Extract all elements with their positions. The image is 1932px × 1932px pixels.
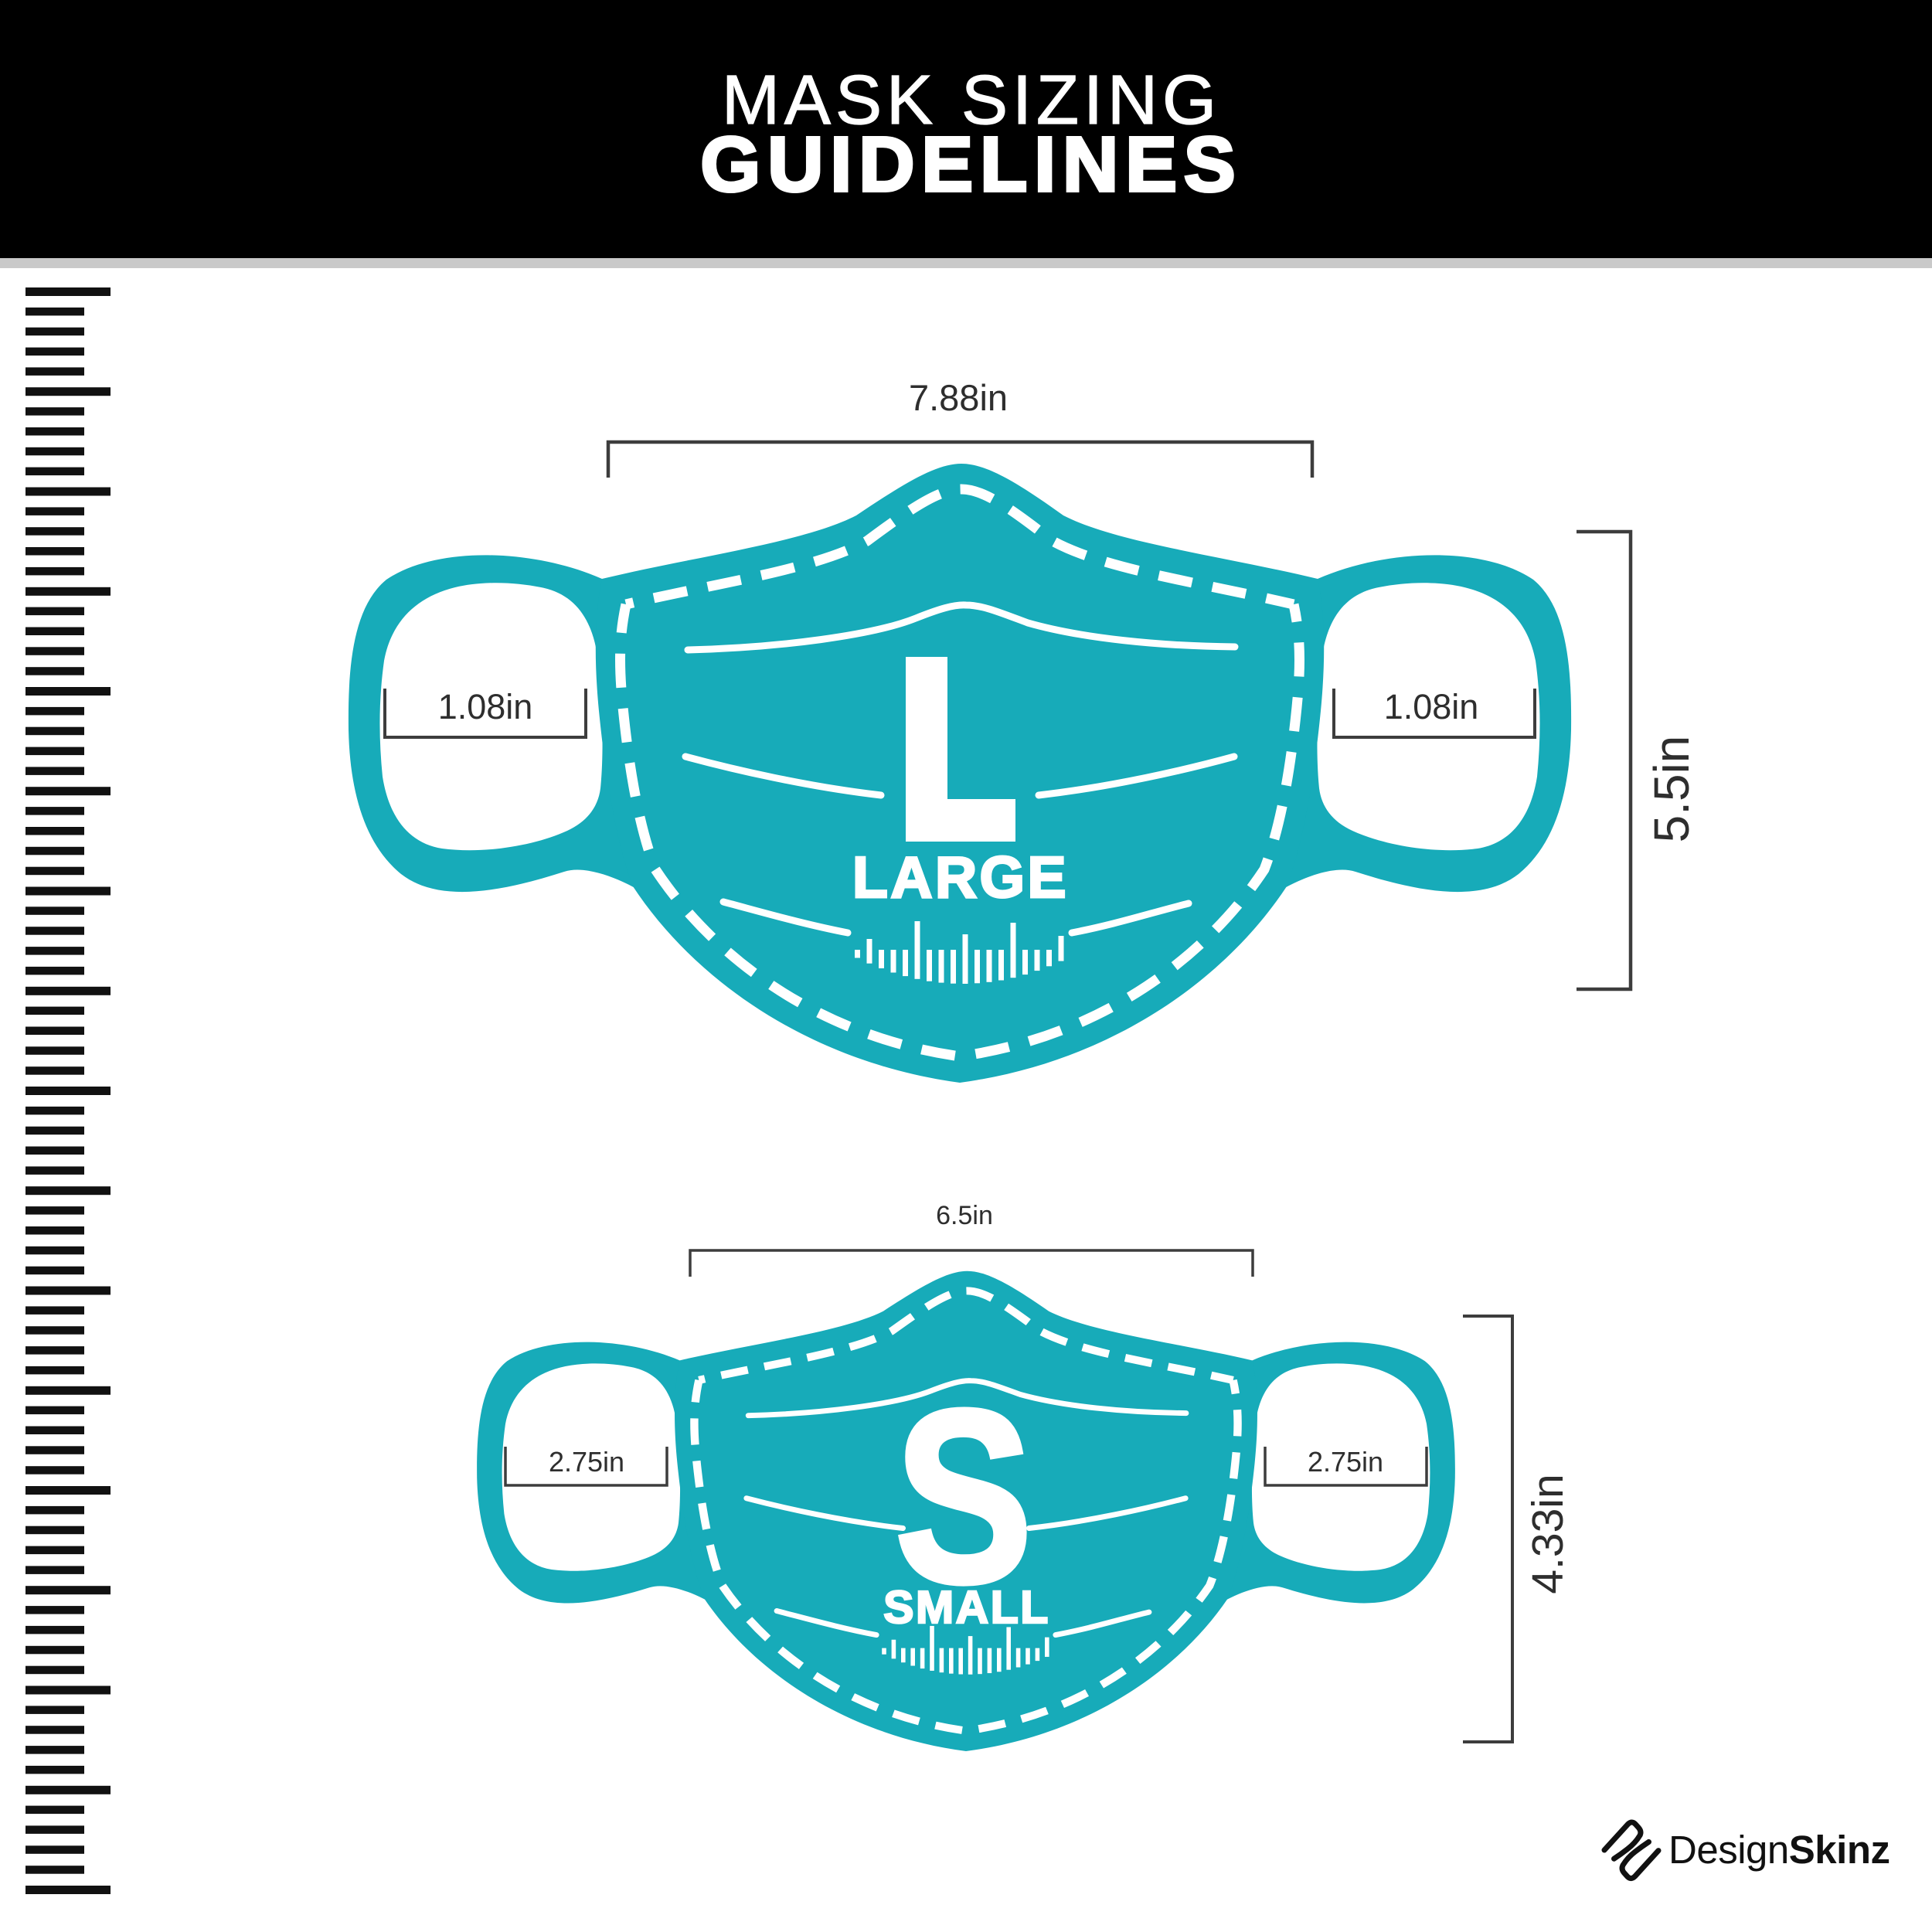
svg-text:LARGE: LARGE [852, 845, 1069, 910]
svg-text:1.08in: 1.08in [1384, 687, 1479, 726]
svg-text:GUIDELINES: GUIDELINES [700, 121, 1242, 208]
svg-text:2.75in: 2.75in [549, 1446, 624, 1478]
svg-text:2.75in: 2.75in [1308, 1446, 1383, 1478]
svg-text:4.33in: 4.33in [1523, 1474, 1573, 1594]
svg-text:DesignSkinz: DesignSkinz [1668, 1828, 1889, 1872]
svg-text:SMALL: SMALL [883, 1582, 1050, 1633]
svg-text:7.88in: 7.88in [909, 377, 1008, 418]
svg-text:5.5in: 5.5in [1644, 736, 1699, 843]
svg-text:6.5in: 6.5in [936, 1201, 993, 1230]
svg-text:1.08in: 1.08in [438, 687, 533, 726]
